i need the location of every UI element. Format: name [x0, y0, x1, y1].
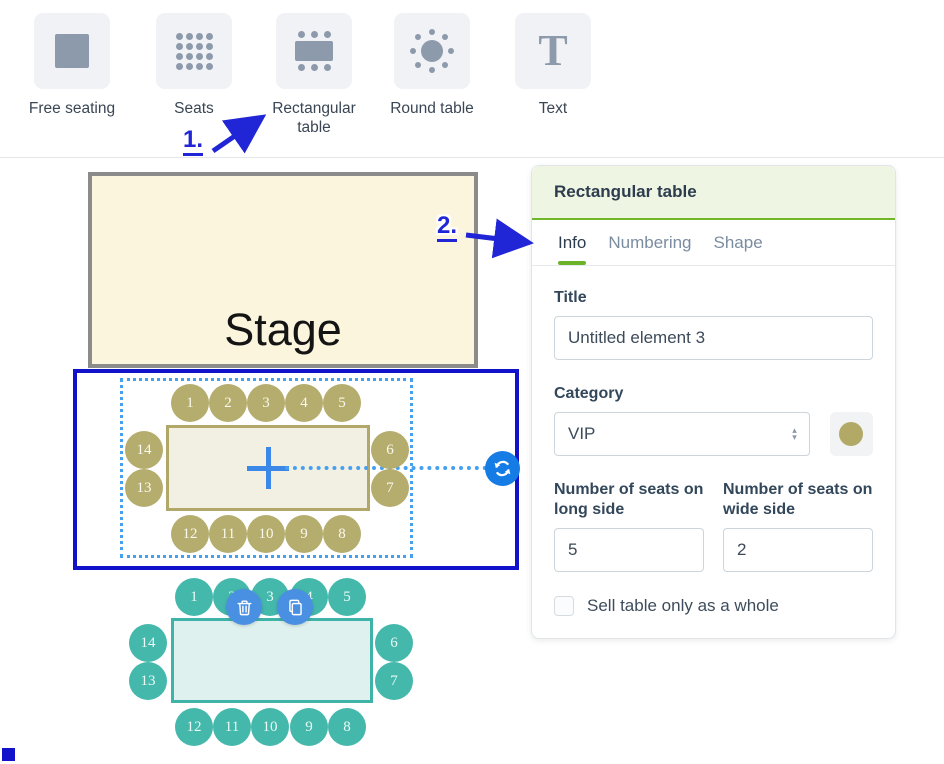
seat-14[interactable]: 14 — [129, 624, 167, 662]
long-side-input[interactable] — [554, 528, 704, 572]
seat-10[interactable]: 10 — [247, 515, 285, 553]
seat-14[interactable]: 14 — [125, 431, 163, 469]
title-input[interactable] — [554, 316, 873, 360]
tab-info[interactable]: Info — [558, 220, 586, 265]
wide-side-input[interactable] — [723, 528, 873, 572]
tool-label: Free seating — [17, 99, 127, 118]
category-selected-value: VIP — [568, 424, 595, 444]
seat-11[interactable]: 11 — [209, 515, 247, 553]
annotation-arrow-2 — [461, 226, 541, 254]
seat-5[interactable]: 5 — [328, 578, 366, 616]
seat-13[interactable]: 13 — [129, 662, 167, 700]
tool-seats-tile[interactable] — [156, 13, 232, 89]
panel-tabs: Info Numbering Shape — [532, 220, 895, 266]
tool-free-seating-button[interactable]: Free seating — [12, 13, 132, 118]
seat-9[interactable]: 9 — [290, 708, 328, 746]
annotation-arrow-1 — [202, 104, 277, 162]
tab-numbering[interactable]: Numbering — [608, 220, 691, 265]
panel-header: Rectangular table — [532, 166, 895, 220]
tool-label: Round table — [377, 99, 487, 118]
duplicate-icon — [286, 598, 305, 617]
sell-whole-label: Sell table only as a whole — [587, 596, 779, 616]
swatch-circle — [839, 422, 863, 446]
annotation-step-1: 1. — [183, 128, 203, 156]
panel-title: Rectangular table — [554, 182, 697, 202]
tool-text-button[interactable]: T Text — [493, 13, 613, 118]
seat-13[interactable]: 13 — [125, 469, 163, 507]
seat-7[interactable]: 7 — [371, 469, 409, 507]
tool-seats-button[interactable]: Seats — [134, 13, 254, 118]
tool-label: Text — [498, 99, 608, 118]
wide-side-label: Number of seats on wide side — [723, 480, 873, 520]
annotation-step-2: 2. — [437, 214, 457, 242]
table-element-group[interactable]: 1234567121110981413 — [130, 579, 412, 745]
sell-whole-checkbox[interactable] — [554, 596, 574, 616]
tool-text-tile[interactable]: T — [515, 13, 591, 89]
tool-round-table-button[interactable]: Round table — [372, 13, 492, 118]
delete-button[interactable] — [226, 589, 262, 625]
seat-5[interactable]: 5 — [323, 384, 361, 422]
duplicate-button[interactable] — [277, 589, 313, 625]
category-field-label: Category — [554, 384, 873, 404]
seat-9[interactable]: 9 — [285, 515, 323, 553]
seat-1[interactable]: 1 — [171, 384, 209, 422]
seat-8[interactable]: 8 — [328, 708, 366, 746]
toolbar-divider — [0, 157, 944, 158]
tab-shape[interactable]: Shape — [714, 220, 763, 265]
select-arrows-icon: ▴▾ — [792, 427, 797, 441]
corner-marker — [2, 748, 15, 761]
stage-label: Stage — [224, 304, 342, 364]
rotate-button[interactable] — [485, 451, 520, 486]
seat-7[interactable]: 7 — [375, 662, 413, 700]
trash-icon — [235, 598, 254, 617]
table-rect[interactable] — [171, 618, 373, 703]
title-field-label: Title — [554, 288, 873, 308]
text-icon: T — [538, 29, 567, 73]
seat-12[interactable]: 12 — [171, 515, 209, 553]
stage-element[interactable]: Stage — [88, 172, 478, 368]
crosshair-icon — [266, 447, 271, 489]
tool-rectangular-table-tile[interactable] — [276, 13, 352, 89]
round-table-icon — [410, 29, 454, 73]
square-icon — [55, 34, 89, 68]
seat-3[interactable]: 3 — [247, 384, 285, 422]
seat-4[interactable]: 4 — [285, 384, 323, 422]
seat-8[interactable]: 8 — [323, 515, 361, 553]
seat-6[interactable]: 6 — [375, 624, 413, 662]
category-select[interactable]: VIP ▴▾ — [554, 412, 810, 456]
rotate-icon — [492, 458, 513, 479]
seat-6[interactable]: 6 — [371, 431, 409, 469]
seat-11[interactable]: 11 — [213, 708, 251, 746]
seat-12[interactable]: 12 — [175, 708, 213, 746]
properties-panel: Rectangular table Info Numbering Shape T… — [531, 165, 896, 639]
category-color-swatch[interactable] — [830, 412, 873, 456]
tool-free-seating-tile[interactable] — [34, 13, 110, 89]
seat-1[interactable]: 1 — [175, 578, 213, 616]
seat-2[interactable]: 2 — [209, 384, 247, 422]
tool-round-table-tile[interactable] — [394, 13, 470, 89]
long-side-label: Number of seats on long side — [554, 480, 704, 520]
seat-10[interactable]: 10 — [251, 708, 289, 746]
seat-grid-icon — [176, 33, 213, 70]
rectangular-table-icon — [295, 31, 333, 71]
